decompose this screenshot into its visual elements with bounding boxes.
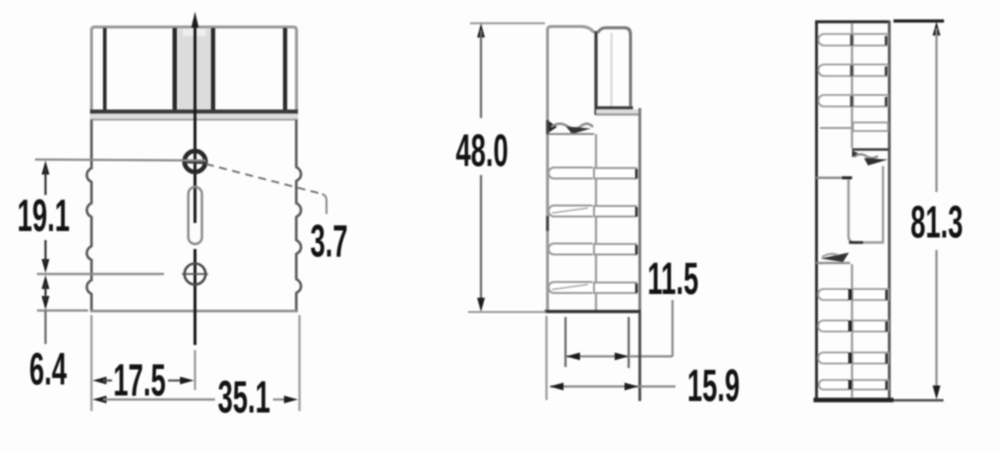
- svg-text:19.1: 19.1: [17, 190, 70, 241]
- svg-text:15.9: 15.9: [687, 360, 740, 411]
- svg-text:3.7: 3.7: [310, 215, 348, 266]
- svg-text:11.5: 11.5: [647, 253, 698, 304]
- svg-text:81.3: 81.3: [911, 196, 964, 247]
- svg-text:48.0: 48.0: [456, 125, 509, 176]
- svg-text:35.1: 35.1: [218, 371, 271, 422]
- svg-text:17.5: 17.5: [113, 354, 166, 405]
- svg-text:6.4: 6.4: [29, 343, 67, 394]
